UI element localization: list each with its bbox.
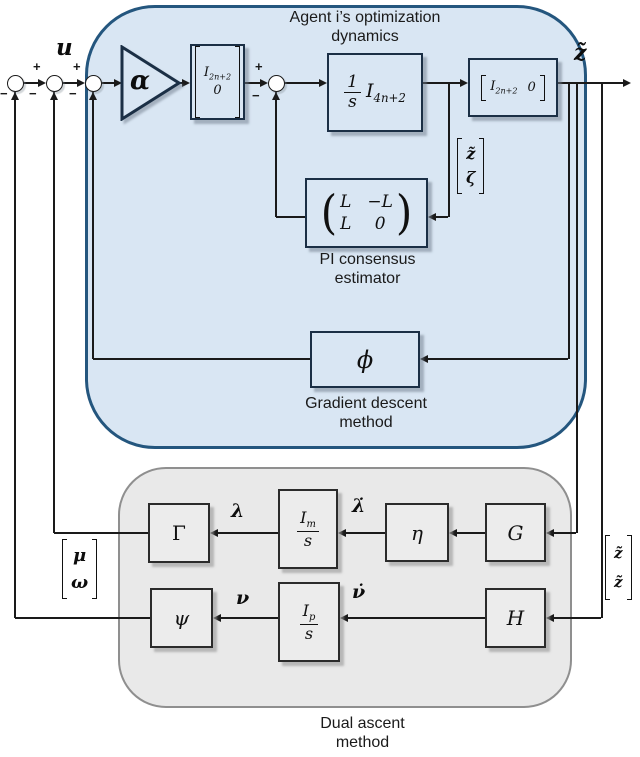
right-bracket (627, 535, 632, 600)
gradient-descent-block: ϕ (310, 331, 420, 388)
input-selection-matrix-block: I2n+2 0 (190, 44, 245, 120)
im-numerator: Im (297, 509, 319, 532)
integrator-identity: I4n+2 (366, 80, 406, 105)
arrowhead-into-sum2-bottom (50, 92, 58, 100)
z-zeta-vector-label: z̃ ζ (457, 138, 484, 194)
left-paren: ( (321, 192, 337, 234)
gamma-block: Γ (148, 503, 210, 563)
arrowhead-into-pi (428, 213, 436, 221)
wire-branch-to-h (601, 83, 603, 618)
arrowhead-into-h (546, 614, 554, 622)
sum-junction-3 (85, 75, 102, 92)
pi-matrix-r1c2: −L (367, 192, 393, 212)
sum1-minus-sign: − (0, 86, 8, 101)
g-block: G (485, 503, 546, 562)
integrator-block: 1 s I4n+2 (327, 53, 423, 132)
right-bracket (92, 539, 97, 599)
integrator-fraction: 1 s (344, 73, 361, 111)
right-bracket (235, 46, 240, 118)
arrowhead-into-ip (340, 614, 348, 622)
wire-h-ip (348, 617, 485, 619)
output-matrix-entry2: 0 (528, 80, 536, 95)
arrowhead-into-sum3 (77, 79, 85, 87)
arrowhead-into-sum3-bottom (89, 92, 97, 100)
alpha-gain-label: α (130, 66, 150, 96)
arrowhead-into-inmatrix (182, 79, 190, 87)
block-diagram-canvas: Agent i’s optimization dynamics (0, 0, 640, 757)
pi-estimator-caption: PI consensus estimator (295, 250, 440, 288)
mu-omega-vector-label: μ ω (62, 539, 97, 599)
wire-im-gamma (218, 532, 278, 534)
sum2-plus-sign: + (33, 59, 41, 74)
wire-gamma-feedback-up (53, 92, 55, 533)
z-output-label: z̃ (574, 40, 587, 66)
psi-block: ψ (150, 588, 213, 648)
wire-phi-output (93, 358, 310, 360)
wire-branch-to-g (576, 83, 578, 533)
wire-gamma-output (54, 532, 148, 534)
right-bracket (540, 75, 545, 101)
wire-pi-output (276, 216, 305, 218)
wire-ip-psi (221, 617, 278, 619)
gradient-descent-caption: Gradient descent method (290, 394, 442, 432)
wire-sum2-sum3 (63, 82, 77, 84)
wire-phi-feedback-up (92, 92, 94, 359)
wire-h-input (554, 617, 601, 619)
eta-block: η (385, 503, 449, 562)
wire-pi-feedback-up (275, 92, 277, 217)
pi-consensus-estimator-block: ( L −L L 0 ) (305, 178, 428, 248)
sum3-minus-sign: − (69, 86, 77, 101)
left-bracket (605, 535, 610, 600)
im-integrator-block: Im s (278, 489, 338, 569)
u-signal-label: u (56, 34, 73, 61)
arrowhead-into-gamma (210, 529, 218, 537)
lambda-label: λ (231, 500, 244, 522)
wire-integrator-outmatrix (423, 82, 460, 84)
output-matrix-entry1: I2n+2 (490, 79, 517, 96)
im-denominator: s (304, 532, 312, 550)
phi-symbol: ϕ (357, 346, 373, 374)
pi-matrix-r2c2: 0 (375, 214, 386, 234)
left-bracket (457, 138, 462, 194)
wire-sum1-sum2 (24, 82, 38, 84)
arrowhead-into-im (338, 529, 346, 537)
ip-numerator: Ip (300, 602, 319, 625)
arrowhead-into-g (546, 529, 554, 537)
wire-sum4-integrator (285, 82, 319, 84)
sum2-minus-sign: − (29, 86, 37, 101)
nu-label: ν (236, 587, 249, 609)
arrowhead-into-sum1-bottom (11, 92, 19, 100)
lambda-dot-label: λ̇ (352, 495, 365, 517)
sum4-plus-sign: + (255, 59, 263, 74)
agent-region-title-line1: Agent i’s optimization (215, 8, 515, 27)
pi-matrix-r1c1: L (340, 192, 351, 212)
output-selection-matrix-block: I2n+2 0 (468, 58, 558, 117)
sum-junction-2 (46, 75, 63, 92)
sum-junction-1 (7, 75, 24, 92)
arrowhead-into-eta (449, 529, 457, 537)
agent-region-title: Agent i’s optimization dynamics (215, 8, 515, 46)
wire-sum3-alpha (102, 82, 114, 84)
left-bracket (195, 46, 200, 118)
sum-junction-4 (268, 75, 285, 92)
arrowhead-into-psi (213, 614, 221, 622)
wire-psi-output (15, 617, 150, 619)
agent-region-title-line2: dynamics (215, 27, 515, 46)
arrowhead-into-phi (420, 355, 428, 363)
wire-eta-im (346, 532, 385, 534)
right-paren: ) (396, 192, 412, 234)
nu-dot-label: ν̇ (352, 581, 365, 603)
sum4-minus-sign: − (252, 88, 260, 103)
wire-pi-input (436, 216, 448, 218)
left-bracket (481, 75, 486, 101)
pi-matrix-r2c1: L (340, 214, 351, 234)
left-bracket (62, 539, 67, 599)
sum3-plus-sign: + (73, 59, 81, 74)
wire-g-input (554, 532, 576, 534)
right-bracket (479, 138, 484, 194)
wire-branch-to-pi (448, 83, 450, 217)
h-block: H (485, 588, 546, 648)
ip-integrator-block: Ip s (278, 582, 340, 662)
arrowhead-into-sum4 (260, 79, 268, 87)
dual-ascent-caption: Dual ascent method (240, 714, 485, 752)
ip-denominator: s (305, 625, 313, 643)
wire-phi-input (428, 358, 568, 360)
arrowhead-into-sum4-bottom (272, 92, 280, 100)
z-z-vector-label: z̃ z̃ (605, 535, 632, 600)
input-matrix-entry1: I2n+2 (204, 65, 231, 83)
arrowhead-into-outmatrix (460, 79, 468, 87)
wire-branch-to-phi (568, 83, 570, 359)
arrowhead-into-sum2 (38, 79, 46, 87)
arrowhead-output (623, 79, 631, 87)
wire-inmatrix-sum4 (245, 82, 260, 84)
wire-g-eta (457, 532, 485, 534)
arrowhead-into-integrator (319, 79, 327, 87)
input-matrix-entry2: 0 (213, 83, 221, 99)
wire-psi-feedback-up (14, 92, 16, 618)
